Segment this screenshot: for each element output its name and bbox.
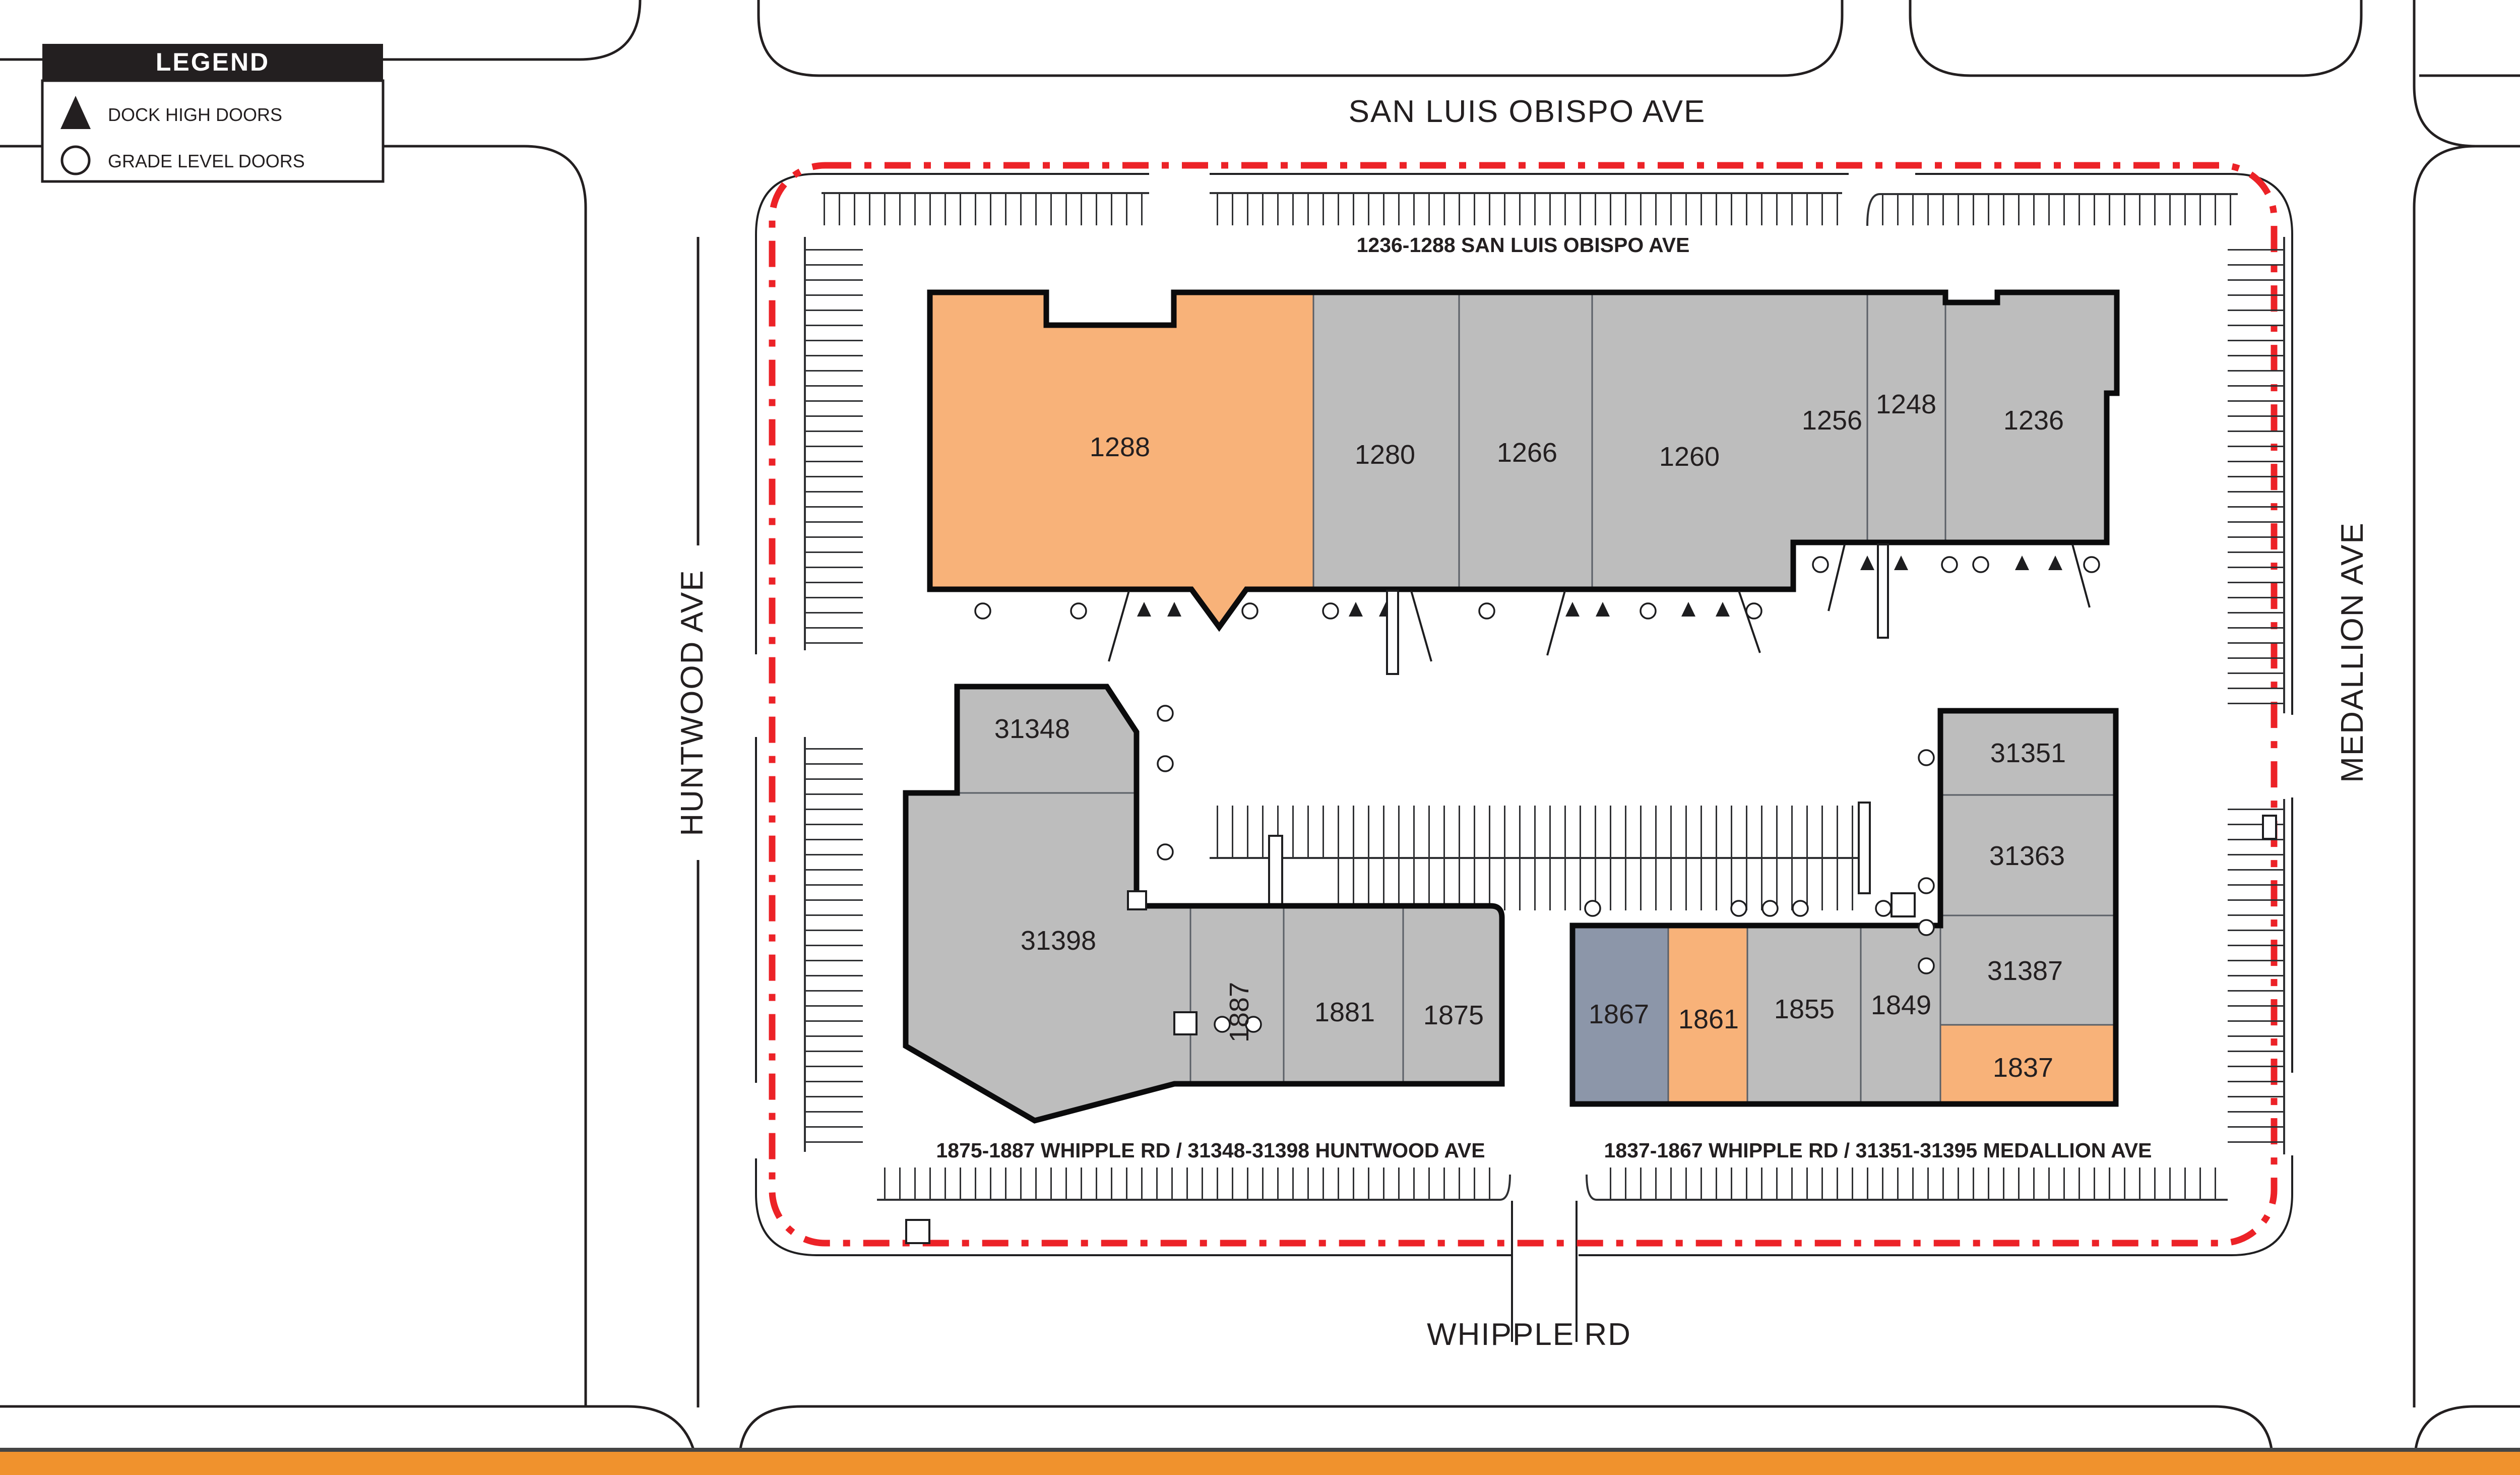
legend-item-dock-high: DOCK HIGH DOORS (108, 104, 282, 125)
utility-box (906, 1220, 929, 1243)
footer-bar-border (0, 1448, 2520, 1452)
utility-box (1174, 1012, 1196, 1034)
unit-label-1288: 1288 (1090, 432, 1150, 462)
address-label-southwest: 1875-1887 WHIPPLE RD / 31348-31398 HUNTW… (936, 1139, 1485, 1162)
address-label-north: 1236-1288 SAN LUIS OBISPO AVE (1357, 233, 1690, 257)
unit-label-1867: 1867 (1589, 999, 1649, 1029)
unit-label-1855: 1855 (1774, 994, 1835, 1024)
street-label-bottom: WHIPPLE RD (1427, 1317, 1631, 1352)
parking-island (1859, 803, 1870, 893)
parcel-southwest (0, 1406, 695, 1453)
utility-box (1128, 891, 1146, 909)
unit-label-31351: 31351 (1990, 738, 2066, 768)
parcel-northeast (2414, 0, 2520, 146)
legend-item-grade-level: GRADE LEVEL DOORS (108, 151, 305, 171)
huntwood-west-curb (0, 146, 586, 1407)
unit-label-1887: 1887 (1224, 982, 1254, 1042)
medallion-east-curb (2414, 146, 2520, 1407)
utility-box (2263, 816, 2276, 839)
site-plan-canvas: SAN LUIS OBISPO AVE WHIPPLE RD HUNTWOOD … (0, 0, 2520, 1475)
parcel-south-middle (740, 1406, 2272, 1453)
unit-1875[interactable] (1403, 906, 1502, 1084)
unit-label-1849: 1849 (1871, 990, 1931, 1020)
legend: LEGEND DOCK HIGH DOORS GRADE LEVEL DOORS (42, 44, 383, 181)
parcel-north-right (1910, 0, 2361, 76)
grade-level-circle-icon (62, 147, 89, 174)
unit-label-1861: 1861 (1678, 1004, 1739, 1034)
unit-label-1881: 1881 (1314, 997, 1375, 1027)
street-lines (0, 76, 2520, 1407)
building-southwest (906, 687, 1502, 1121)
utility-box (1892, 893, 1915, 916)
unit-label-1256: 1256 (1802, 405, 1862, 436)
south-parcels (0, 1406, 2520, 1453)
unit-label-1236: 1236 (2003, 405, 2064, 436)
unit-label-31363: 31363 (1989, 841, 2065, 871)
address-label-southeast: 1837-1867 WHIPPLE RD / 31351-31395 MEDAL… (1604, 1139, 2152, 1162)
unit-label-1266: 1266 (1497, 438, 1557, 468)
legend-title: LEGEND (156, 48, 270, 76)
street-label-top: SAN LUIS OBISPO AVE (1349, 94, 1706, 129)
footer-bar (0, 1452, 2520, 1475)
unit-label-1260: 1260 (1659, 442, 1720, 472)
street-label-right: MEDALLION AVE (2335, 522, 2370, 783)
parcel-southeast (2415, 1406, 2520, 1453)
unit-label-1248: 1248 (1876, 389, 1936, 419)
site-plan: SAN LUIS OBISPO AVE WHIPPLE RD HUNTWOOD … (0, 0, 2520, 1475)
unit-label-31348: 31348 (994, 714, 1070, 744)
unit-label-1280: 1280 (1355, 440, 1415, 470)
unit-label-31398: 31398 (1021, 926, 1096, 956)
unit-1881[interactable] (1284, 906, 1403, 1084)
parcel-north-middle (759, 0, 1842, 76)
unit-label-1875: 1875 (1423, 1000, 1484, 1030)
unit-label-31387: 31387 (1987, 956, 2063, 986)
unit-label-1837: 1837 (1993, 1053, 2053, 1083)
unit-1260[interactable] (1592, 292, 1793, 589)
street-label-left: HUNTWOOD AVE (675, 569, 710, 836)
